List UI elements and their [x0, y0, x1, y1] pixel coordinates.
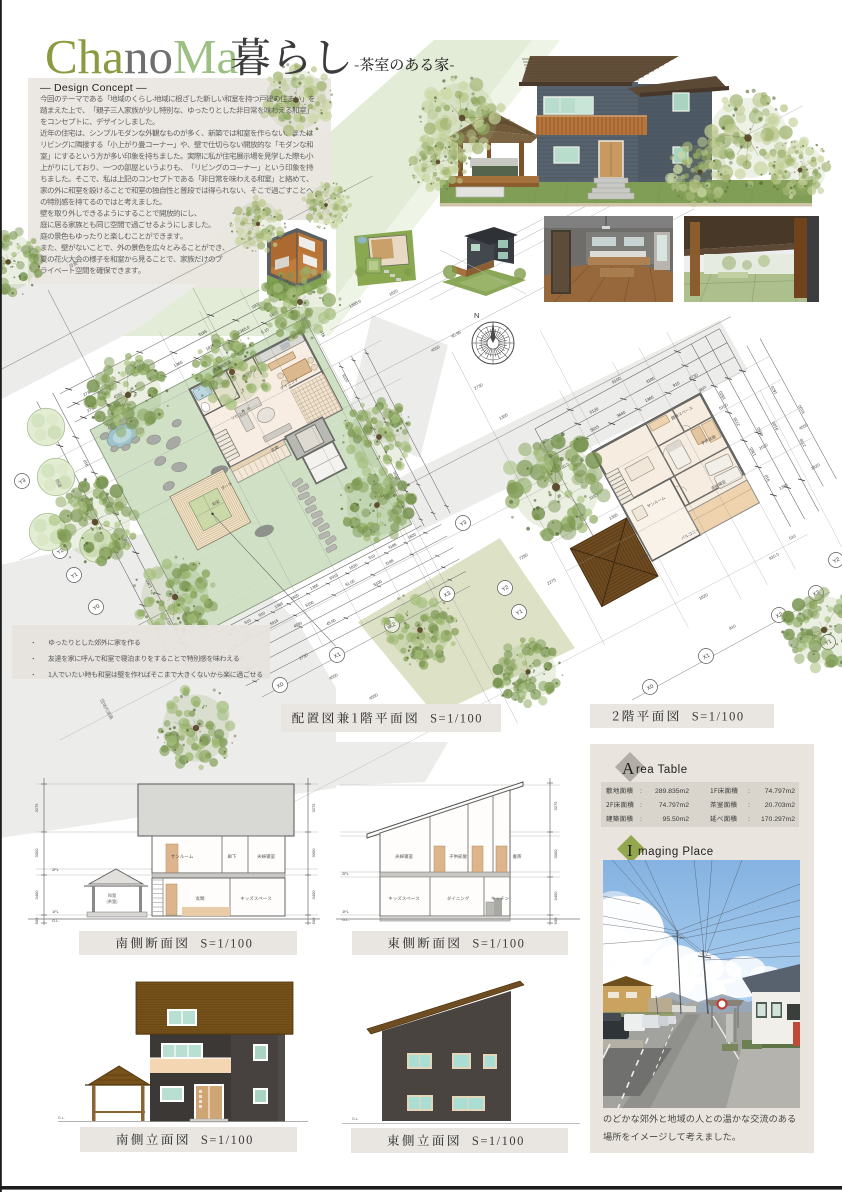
svg-text:3400: 3400	[311, 890, 316, 900]
svg-text:600: 600	[34, 917, 39, 924]
svg-text:rea Table: rea Table	[636, 764, 688, 776]
svg-text:3400: 3400	[34, 890, 39, 900]
svg-text:S=1/100: S=1/100	[692, 709, 745, 723]
svg-text:G.L.: G.L.	[352, 1117, 359, 1121]
svg-text:2FL: 2FL	[52, 867, 60, 872]
svg-text:S=1/100: S=1/100	[472, 936, 525, 950]
svg-text:ChanoMa: ChanoMa	[45, 29, 239, 84]
svg-text:— Design Concept —: — Design Concept —	[40, 82, 147, 94]
svg-text:G.L.: G.L.	[58, 1116, 65, 1120]
svg-text:74.797m2: 74.797m2	[765, 788, 795, 795]
svg-text::: :	[748, 802, 750, 809]
svg-text:3000: 3000	[553, 849, 558, 859]
svg-text:G.L.: G.L.	[342, 917, 350, 922]
svg-text:74.797m2: 74.797m2	[659, 802, 689, 809]
svg-text:2FL: 2FL	[342, 871, 350, 876]
svg-text:289.835m2: 289.835m2	[655, 788, 689, 795]
svg-text:maging Place: maging Place	[638, 846, 714, 858]
svg-text:N: N	[474, 311, 479, 320]
svg-text:95.50m2: 95.50m2	[663, 816, 690, 823]
svg-text:600: 600	[553, 917, 558, 924]
svg-text::: :	[640, 788, 642, 795]
svg-text:3000: 3000	[34, 848, 39, 858]
svg-text:3000: 3000	[311, 848, 316, 858]
svg-text:S=1/100: S=1/100	[430, 711, 483, 725]
svg-text:20.703m2: 20.703m2	[765, 802, 795, 809]
svg-text:S=1/100: S=1/100	[472, 1134, 525, 1148]
svg-text:A: A	[622, 759, 635, 778]
svg-text::: :	[748, 816, 750, 823]
svg-text:1FL: 1FL	[342, 909, 350, 914]
svg-text:3275: 3275	[34, 803, 39, 813]
svg-text:1FL: 1FL	[52, 909, 60, 914]
svg-text::: :	[640, 816, 642, 823]
svg-text:3400: 3400	[553, 891, 558, 901]
svg-text:I: I	[627, 841, 633, 860]
svg-text::: :	[748, 788, 750, 795]
svg-text:600: 600	[311, 917, 316, 924]
svg-text:170.297m2: 170.297m2	[761, 816, 795, 823]
svg-text::: :	[640, 802, 642, 809]
svg-text:S=1/100: S=1/100	[200, 936, 253, 950]
svg-text:3275: 3275	[553, 801, 558, 811]
svg-text:S=1/100: S=1/100	[201, 1133, 254, 1147]
svg-text:3275: 3275	[311, 803, 316, 813]
